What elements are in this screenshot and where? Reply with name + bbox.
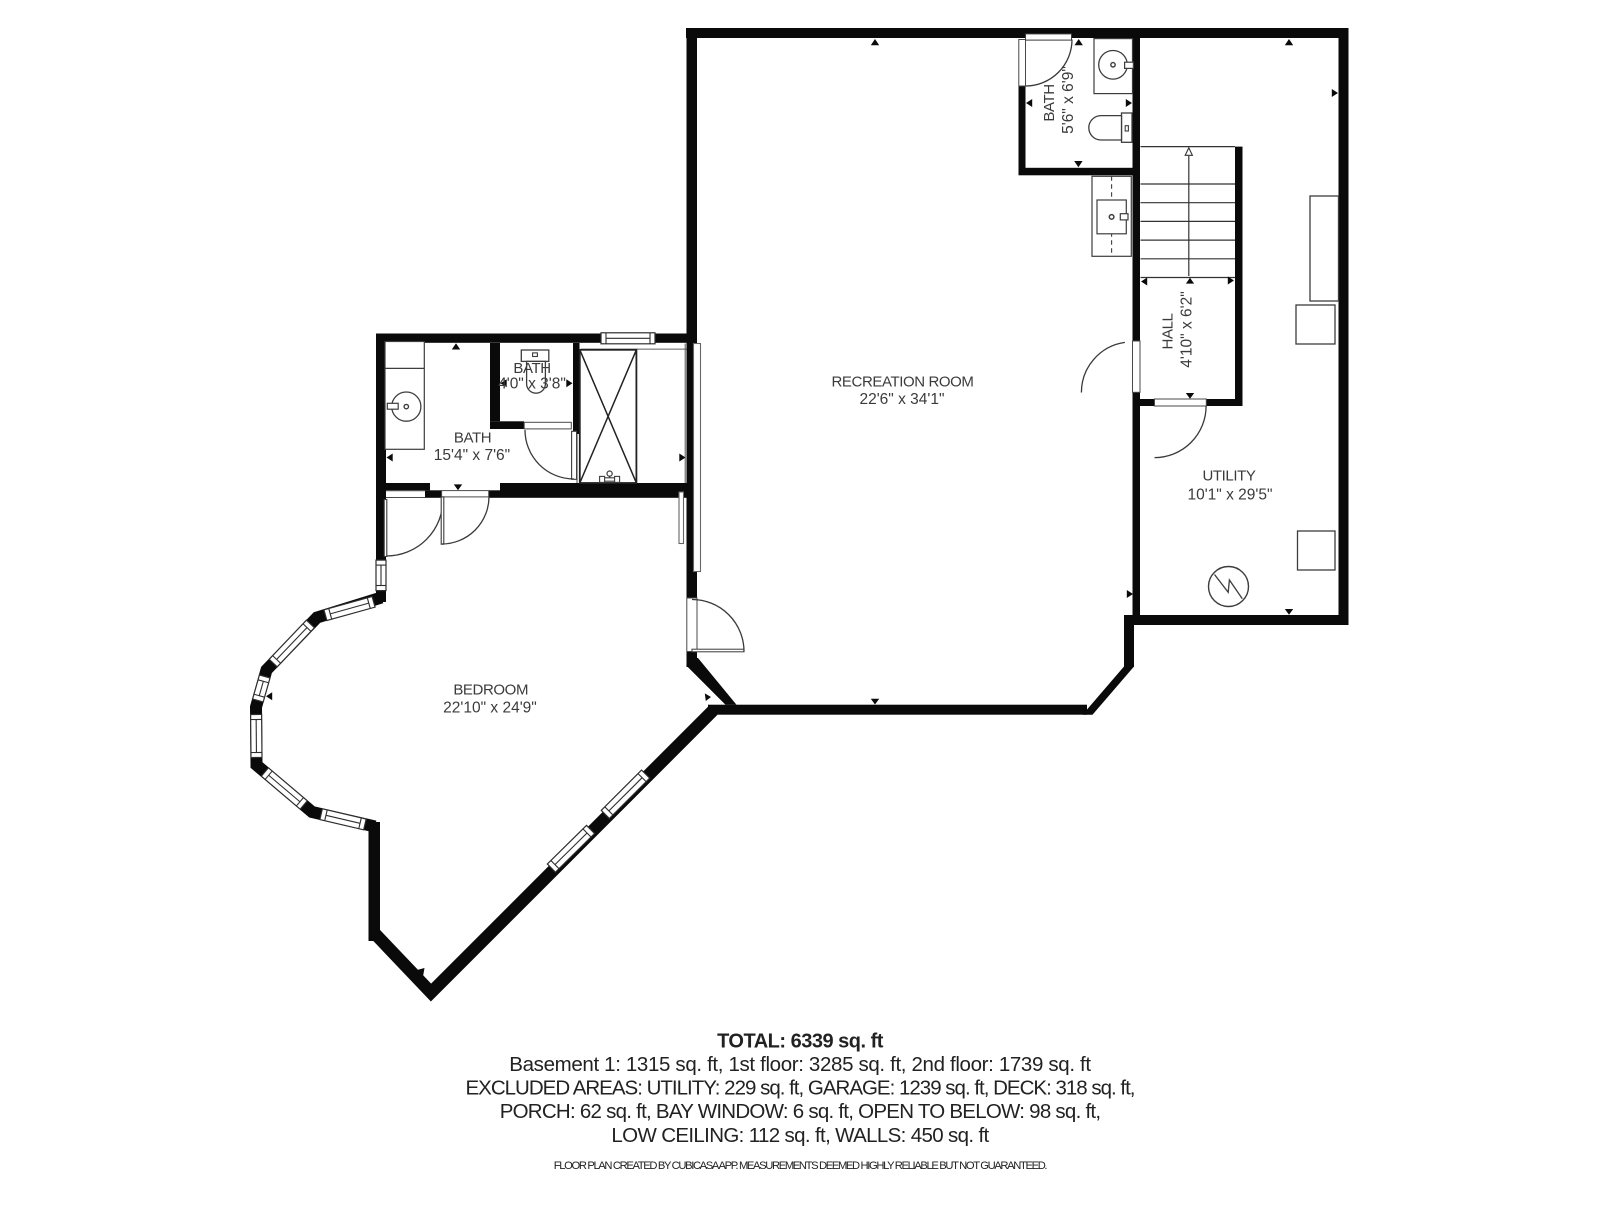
svg-text:Basement 1: 1315 sq. ft, 1st f: Basement 1: 1315 sq. ft, 1st floor: 3285… (509, 1053, 1091, 1076)
svg-text:LOW CEILING: 112 sq. ft, WALLS: LOW CEILING: 112 sq. ft, WALLS: 450 sq. … (611, 1124, 989, 1147)
svg-text:EXCLUDED AREAS: UTILITY: 229 s: EXCLUDED AREAS: UTILITY: 229 sq. ft, GAR… (466, 1077, 1135, 1100)
svg-text:4'10" x 6'2": 4'10" x 6'2" (1179, 291, 1196, 367)
svg-text:22'6" x 34'1": 22'6" x 34'1" (859, 391, 944, 408)
svg-text:BATH: BATH (454, 430, 491, 447)
svg-text:HALL: HALL (1160, 313, 1177, 349)
svg-text:22'10" x 24'9": 22'10" x 24'9" (443, 700, 537, 717)
svg-text:TOTAL: 6339 sq. ft: TOTAL: 6339 sq. ft (717, 1031, 884, 1053)
svg-text:4'0" x 3'8": 4'0" x 3'8" (498, 375, 566, 392)
svg-text:UTILITY: UTILITY (1202, 468, 1255, 485)
svg-text:BEDROOM: BEDROOM (453, 682, 528, 699)
svg-text:BATH: BATH (1041, 84, 1058, 121)
svg-text:FLOOR PLAN CREATED BY CUBICASA: FLOOR PLAN CREATED BY CUBICASA APP. MEAS… (554, 1160, 1048, 1172)
svg-text:15'4" x 7'6": 15'4" x 7'6" (434, 447, 510, 464)
svg-text:RECREATION ROOM: RECREATION ROOM (831, 374, 973, 391)
svg-text:PORCH: 62 sq. ft, BAY WINDOW:: PORCH: 62 sq. ft, BAY WINDOW: 6 sq. ft, … (500, 1100, 1101, 1123)
svg-text:10'1" x 29'5": 10'1" x 29'5" (1187, 487, 1272, 504)
svg-text:5'6" x 6'9": 5'6" x 6'9" (1060, 66, 1077, 134)
